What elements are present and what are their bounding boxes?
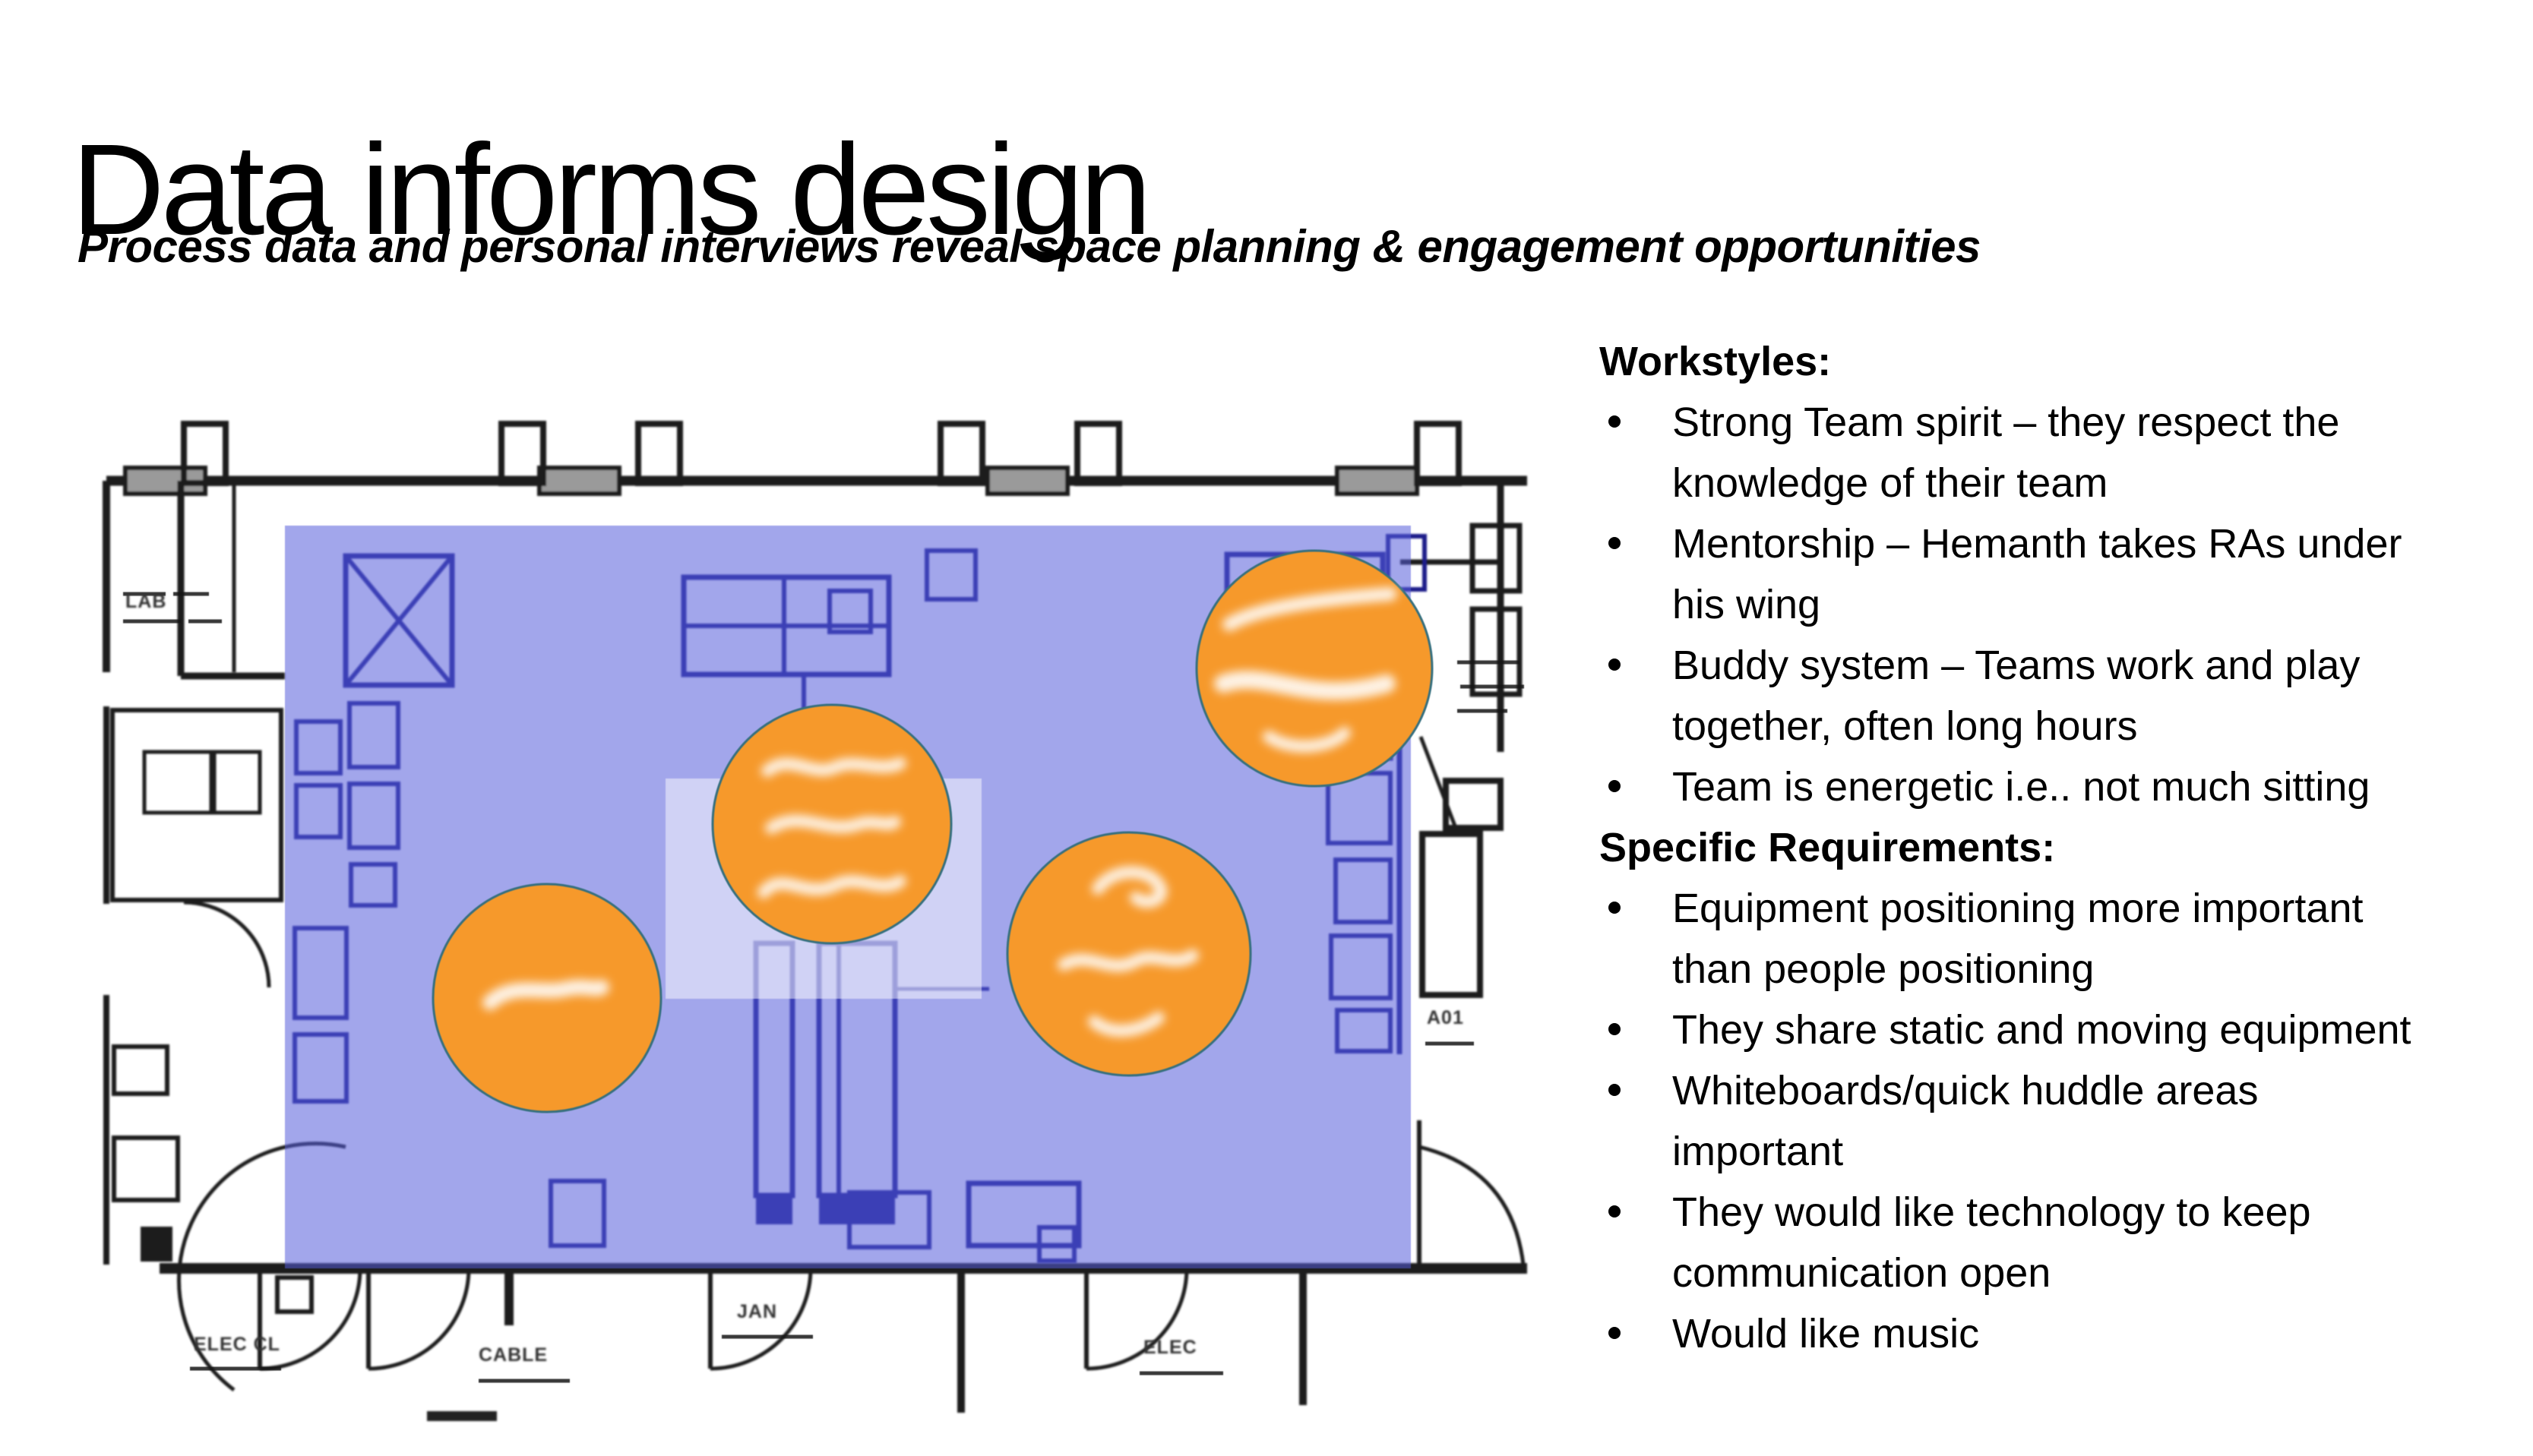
list-item: Equipment positioning more important tha… [1599,878,2519,1000]
list-item: Strong Team spirit – they respect the kn… [1599,392,2519,513]
workstyles-list: Strong Team spirit – they respect the kn… [1599,392,2519,817]
specific-requirements-list: Equipment positioning more important tha… [1599,878,2519,1364]
plan-label-cable: CABLE [479,1344,548,1366]
plan-label-a01: A01 [1427,1007,1464,1028]
slide: Data informs design Process data and per… [0,0,2533,1456]
bullet-dot [1608,1327,1621,1339]
section-heading-workstyles: Workstyles: [1599,331,2519,392]
notes-panel: Workstyles: Strong Team spirit – they re… [1599,331,2519,1364]
bullet-dot [1608,780,1621,792]
list-item: They would like technology to keep commu… [1599,1182,2519,1303]
bullet-dot [1608,415,1621,428]
bullet-dot [1608,1205,1621,1218]
bullet-dot [1608,537,1621,549]
bullet-dot [1608,659,1621,671]
floor-plan-image: LAB ELEC CL CABLE JAN ELEC A01 [53,327,1531,1456]
list-item: Team is energetic i.e.. not much sitting [1599,756,2519,817]
list-item: Buddy system – Teams work and play toget… [1599,635,2519,756]
list-item: Mentorship – Hemanth takes RAs under his… [1599,513,2519,635]
plan-label-elec-cl: ELEC CL [194,1334,280,1355]
list-item: They share static and moving equipment [1599,1000,2519,1060]
plan-label-lab: LAB [125,591,166,612]
list-item: Whiteboards/quick huddle areas important [1599,1060,2519,1182]
slide-subtitle: Process data and personal interviews rev… [77,220,1981,273]
section-heading-specific-requirements: Specific Requirements: [1599,817,2519,878]
list-item: Would like music [1599,1303,2519,1364]
plan-label-jan: JAN [737,1301,777,1322]
bullet-dot [1608,902,1621,914]
plan-label-elec: ELEC [1143,1337,1197,1358]
bullet-dot [1608,1084,1621,1096]
bullet-dot [1608,1023,1621,1035]
